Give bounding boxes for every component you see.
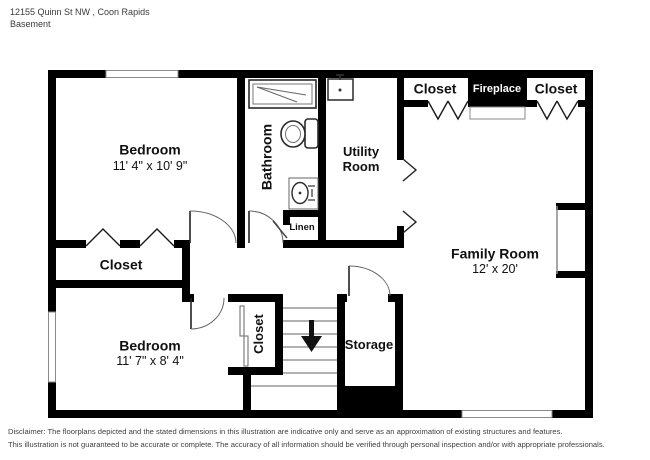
storage-label: Storage	[345, 338, 393, 352]
closet-bedroom2-sliding-door	[240, 306, 248, 366]
window-well-right	[556, 203, 585, 278]
bedroom1-door	[190, 211, 236, 243]
fireplace-label: Fireplace	[473, 83, 521, 95]
bedroom2-door	[191, 298, 224, 329]
bathroom-label: Bathroom	[259, 124, 274, 190]
fireplace-hearth	[470, 107, 525, 119]
bedroom1-dims: 11' 4" x 10' 9"	[113, 160, 188, 174]
utility-label-line1: Utility	[343, 145, 379, 159]
opening-marks-utility	[403, 159, 416, 233]
shower-icon	[249, 80, 316, 108]
closet-hall-label: Closet	[100, 257, 143, 272]
closet-bedroom2-label: Closet	[252, 314, 266, 354]
bifold-closet-hall-left	[86, 229, 120, 246]
linen-label: Linen	[289, 223, 314, 233]
bedroom1-label: Bedroom	[119, 142, 180, 157]
family-room-label: Family Room	[451, 246, 539, 261]
window-top	[106, 71, 178, 78]
bifold-closet-tr-2	[557, 101, 578, 119]
floorplan-drawing	[0, 0, 650, 460]
utility-label-line2: Room	[343, 160, 380, 174]
bedroom2-label: Bedroom	[119, 338, 180, 353]
toilet-icon	[281, 119, 318, 148]
family-room-dims: 12' x 20'	[472, 263, 518, 277]
storage-door	[349, 266, 390, 296]
disclaimer-line2: This illustration is not guaranteed to b…	[8, 440, 605, 449]
window-left	[49, 312, 56, 382]
floorplan-page: 12155 Quinn St NW , Coon Rapids Basement	[0, 0, 650, 460]
sink-icon	[289, 178, 318, 209]
closet-top-left-label: Closet	[414, 81, 457, 96]
bifold-closet-tl-2	[448, 101, 468, 119]
bifold-closet-tr-1	[537, 101, 557, 119]
closet-top-right-label: Closet	[535, 81, 578, 96]
utility-sink-icon	[328, 75, 353, 100]
bedroom2-dims: 11' 7" x 8' 4"	[116, 355, 184, 369]
bifold-closet-hall-right	[140, 229, 174, 246]
disclaimer-line1: Disclaimer: The floorplans depicted and …	[8, 427, 563, 436]
window-bottom	[462, 411, 552, 418]
bifold-closet-tl-1	[428, 101, 448, 119]
